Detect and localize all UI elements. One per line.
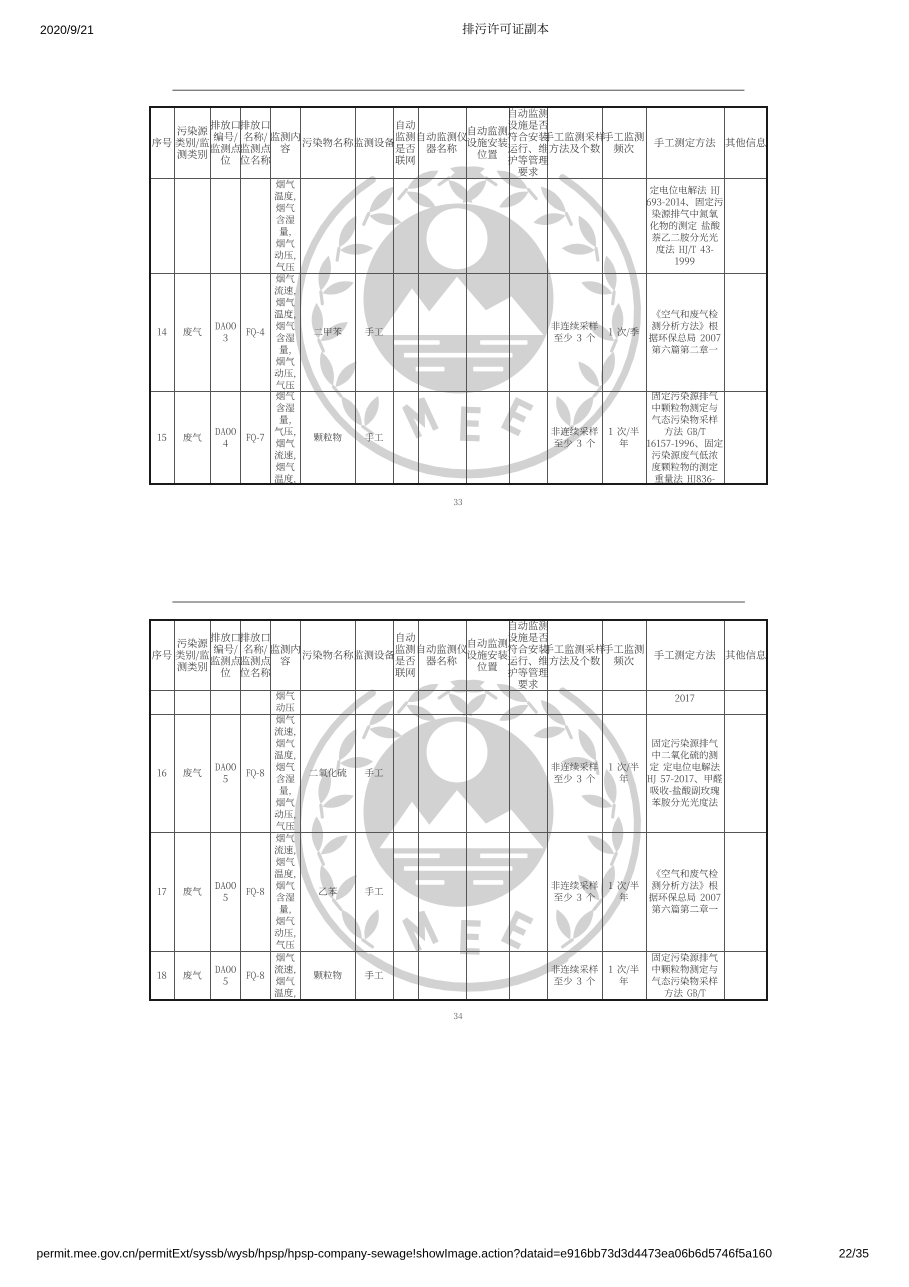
svg-text:22/35: 22/35	[839, 1247, 870, 1261]
svg-text:permit.mee.gov.cn/permitExt/sy: permit.mee.gov.cn/permitExt/syssb/wysb/h…	[37, 1247, 773, 1261]
svg-text:2020/9/21: 2020/9/21	[40, 23, 94, 37]
